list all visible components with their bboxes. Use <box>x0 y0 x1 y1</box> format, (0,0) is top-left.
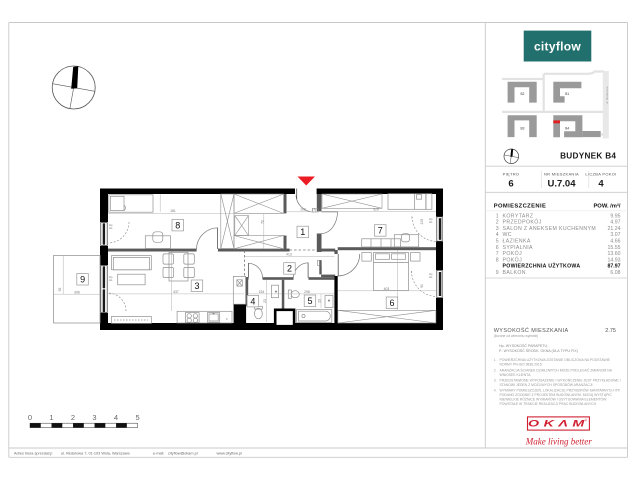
svg-text:POMIESZCZENIE: POMIESZCZENIE <box>494 204 547 210</box>
svg-text:B1: B1 <box>565 92 569 96</box>
svg-text:6.08: 6.08 <box>610 270 620 276</box>
svg-text:NORMY PN-ISO 9836:2015.: NORMY PN-ISO 9836:2015. <box>500 363 543 367</box>
svg-text:www.cityflow.pl: www.cityflow.pl <box>217 452 242 456</box>
svg-text:ARANŻACJA ŚCIANEK DZIAŁOWYCH M: ARANŻACJA ŚCIANEK DZIAŁOWYCH MOŻE PODLEG… <box>500 368 613 373</box>
svg-text:7: 7 <box>496 251 499 257</box>
svg-text:KORYTARZ: KORYTARZ <box>503 213 534 219</box>
svg-text:P- WYSOKOŚĆ ŚRODK. OKNA (DLA T: P- WYSOKOŚĆ ŚRODK. OKNA (DLA TYPU FIX) <box>499 348 578 353</box>
svg-text:STANOWI JEDEN Z MOŻLIWYCH SPOS: STANOWI JEDEN Z MOŻLIWYCH SPOSOBÓW ARANŻ… <box>500 382 594 387</box>
svg-text:LICZBA POKOI: LICZBA POKOI <box>585 172 616 177</box>
svg-text:403: 403 <box>384 287 390 291</box>
svg-text:3: 3 <box>92 413 96 422</box>
svg-text:23: 23 <box>318 299 322 303</box>
svg-text:181: 181 <box>170 209 176 213</box>
svg-text:POW. /m²/: POW. /m²/ <box>593 203 620 210</box>
svg-text:POKÓJ: POKÓJ <box>503 256 523 263</box>
svg-text:413: 413 <box>286 253 292 257</box>
svg-text:PRZEDSTAWIONE WYPOSAŻENIE I WY: PRZEDSTAWIONE WYPOSAŻENIE I WYKOŃCZENIE … <box>500 378 621 383</box>
svg-text:2: 2 <box>496 220 499 226</box>
svg-text:4: 4 <box>598 179 604 190</box>
svg-text:Hp- WYSOKOŚĆ PARAPETU,: Hp- WYSOKOŚĆ PARAPETU, <box>499 343 548 348</box>
svg-text:ul. Redutowa: ul. Redutowa <box>605 86 609 104</box>
svg-text:4: 4 <box>114 413 118 422</box>
svg-text:2: 2 <box>71 413 75 422</box>
svg-text:SALON Z ANEKSEM KUCHENNYM: SALON Z ANEKSEM KUCHENNYM <box>503 226 597 232</box>
svg-text:SYPIALNIA: SYPIALNIA <box>503 245 534 251</box>
svg-text:9: 9 <box>80 275 85 285</box>
svg-text:0: 0 <box>28 413 32 422</box>
svg-text:NIEWIELKIE RÓŻNICE WYMIARÓW I: NIEWIELKIE RÓŻNICE WYMIARÓW I USYTUOWANI… <box>500 397 608 402</box>
svg-text:5: 5 <box>136 413 140 422</box>
svg-text:14.93: 14.93 <box>608 257 621 263</box>
svg-text:4: 4 <box>496 232 499 238</box>
svg-text:102: 102 <box>300 208 306 212</box>
svg-text:6: 6 <box>508 179 513 190</box>
svg-text:23: 23 <box>263 299 267 303</box>
svg-text:3: 3 <box>194 281 199 291</box>
svg-text:PRZEDPOKÓJ: PRZEDPOKÓJ <box>503 219 542 226</box>
svg-text:B3: B3 <box>520 127 524 131</box>
svg-text:6: 6 <box>389 298 394 308</box>
svg-text:3.07: 3.07 <box>610 232 620 238</box>
svg-text:90: 90 <box>420 284 424 288</box>
svg-text:154: 154 <box>259 290 265 294</box>
svg-text:3.: 3. <box>494 379 497 383</box>
svg-text:B2: B2 <box>520 92 524 96</box>
svg-text:9.95: 9.95 <box>610 213 620 219</box>
svg-text:(liczone od wierzchu wylewki): (liczone od wierzchu wylewki) <box>494 334 538 338</box>
svg-text:e-mail:: e-mail: <box>153 452 164 456</box>
svg-text:298: 298 <box>304 290 310 294</box>
svg-text:POWSTAŁE W TRAKCIE REALIZACJI: POWSTAŁE W TRAKCIE REALIZACJI PRAC BUDOW… <box>500 402 598 406</box>
svg-text:4.97: 4.97 <box>610 220 620 226</box>
svg-text:7: 7 <box>378 226 383 236</box>
svg-text:8: 8 <box>496 257 499 263</box>
svg-text:OKΛM: OKΛM <box>528 418 589 429</box>
svg-text:306: 306 <box>74 290 80 294</box>
svg-text:BUDYNEK B4: BUDYNEK B4 <box>560 152 616 161</box>
svg-text:Make living better: Make living better <box>525 436 592 446</box>
svg-text:8: 8 <box>175 220 180 230</box>
svg-text:PIĘTRO: PIĘTRO <box>503 172 520 177</box>
svg-text:6: 6 <box>496 245 499 251</box>
svg-text:BALKON: BALKON <box>503 270 526 276</box>
svg-text:B4: B4 <box>565 127 569 131</box>
svg-text:2: 2 <box>287 264 292 274</box>
svg-text:1: 1 <box>496 213 499 219</box>
svg-text:4: 4 <box>250 296 255 306</box>
svg-text:cityflow@okam.pl: cityflow@okam.pl <box>168 452 198 456</box>
svg-text:15.55: 15.55 <box>608 245 621 251</box>
svg-text:PODANO ZGODNIE Z PROJEKTEM BUD: PODANO ZGODNIE Z PROJEKTEM BUDOWLANYM. M… <box>500 392 613 397</box>
svg-text:2.75: 2.75 <box>605 328 616 334</box>
svg-text:U.7.04: U.7.04 <box>548 179 577 190</box>
svg-text:92: 92 <box>58 288 62 292</box>
svg-text:WYSOKOŚĆ MIESZKANIA: WYSOKOŚĆ MIESZKANIA <box>494 326 569 334</box>
svg-text:9: 9 <box>496 270 499 276</box>
svg-text:POKÓJ: POKÓJ <box>503 250 523 257</box>
svg-text:ul. Redutowa 7, 01-103 Wola, W: ul. Redutowa 7, 01-103 Wola, Warszawa <box>61 452 130 456</box>
svg-text:WC: WC <box>503 232 512 238</box>
svg-text:3: 3 <box>496 226 499 232</box>
svg-text:72: 72 <box>260 220 264 224</box>
svg-text:529: 529 <box>373 208 379 212</box>
svg-text:4.: 4. <box>494 389 497 393</box>
svg-text:POWIERZCHNIA UŻYTKOWA ZOSTANIE: POWIERZCHNIA UŻYTKOWA ZOSTANIE OBLICZONA… <box>500 357 611 362</box>
svg-text:2.: 2. <box>494 369 497 373</box>
svg-text:437: 437 <box>173 290 179 294</box>
svg-text:ŁAZIENKA: ŁAZIENKA <box>503 239 531 245</box>
svg-text:z: z <box>226 317 228 321</box>
svg-text:21.24: 21.24 <box>608 226 621 232</box>
svg-text:5: 5 <box>496 239 499 245</box>
svg-text:cityflow: cityflow <box>534 40 581 54</box>
svg-text:NR MIESZKANIA: NR MIESZKANIA <box>544 172 579 177</box>
svg-text:13.60: 13.60 <box>608 251 621 257</box>
svg-text:1: 1 <box>49 413 53 422</box>
svg-text:WYMIARY POMIESZCZEŃ, LOKALIZAC: WYMIARY POMIESZCZEŃ, LOKALIZACJĘ PRZYBOR… <box>500 388 621 393</box>
svg-text:17: 17 <box>312 208 316 212</box>
svg-text:POWIERZCHNIA UŻYTKOWA: POWIERZCHNIA UŻYTKOWA <box>503 263 581 270</box>
svg-text:1: 1 <box>300 227 305 237</box>
svg-text:5: 5 <box>307 296 312 306</box>
svg-text:4.66: 4.66 <box>610 239 620 245</box>
svg-text:219: 219 <box>420 219 424 225</box>
svg-text:WNIOSEK KLIENTA.: WNIOSEK KLIENTA. <box>500 373 532 377</box>
svg-text:87.97: 87.97 <box>608 264 621 270</box>
svg-text:Adres biura sprzedaży:: Adres biura sprzedaży: <box>14 452 53 456</box>
svg-text:1.: 1. <box>494 358 497 362</box>
